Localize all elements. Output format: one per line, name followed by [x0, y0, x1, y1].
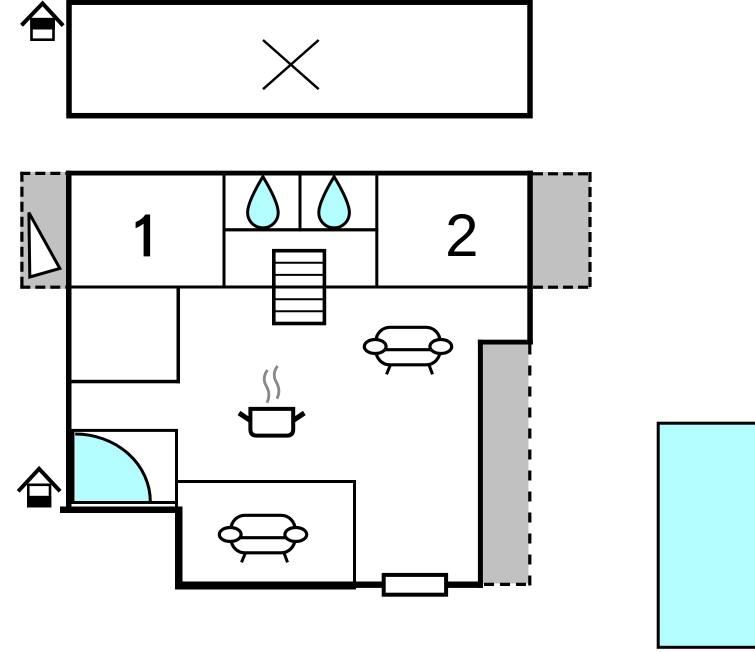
svg-text:2: 2: [445, 202, 478, 269]
